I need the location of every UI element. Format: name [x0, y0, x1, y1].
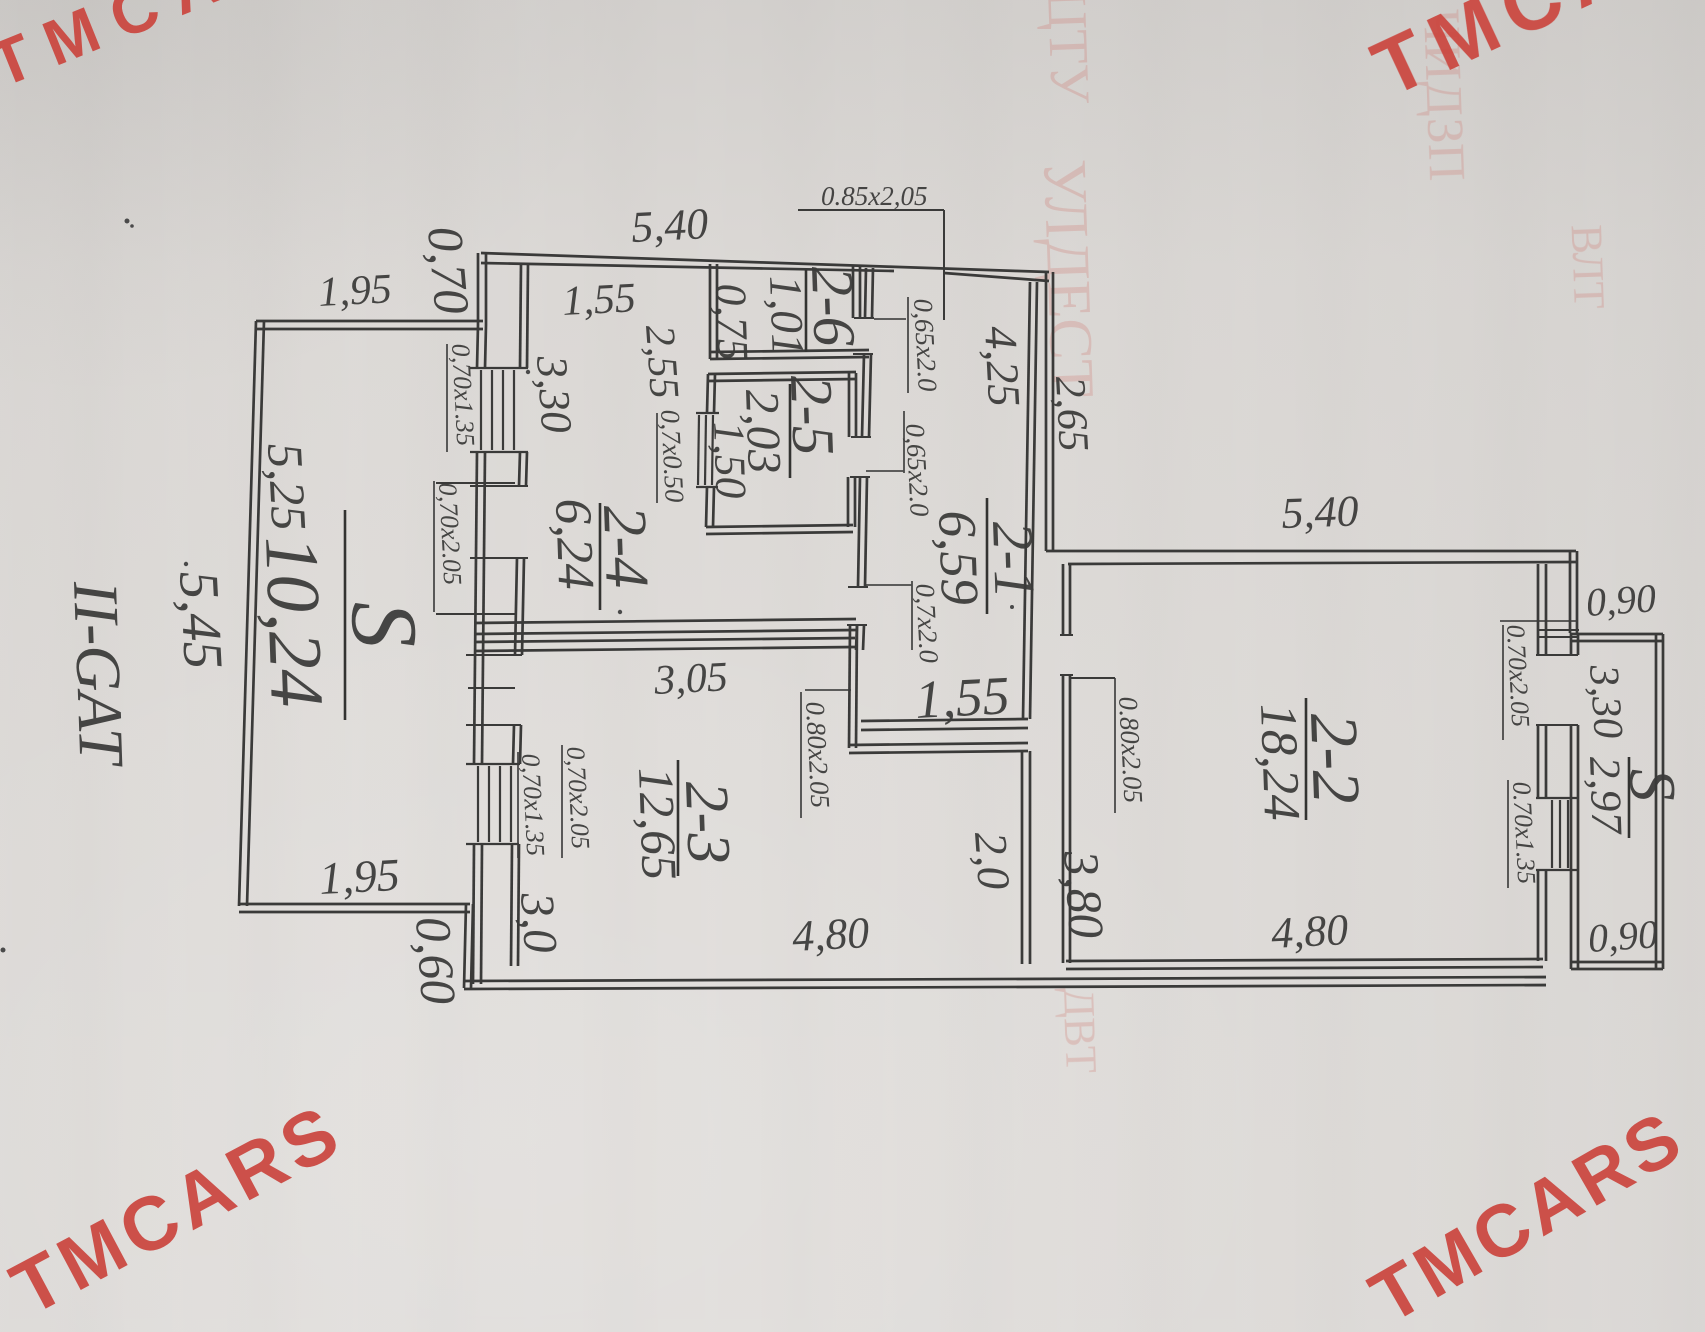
svg-text:1,95: 1,95 [318, 849, 401, 904]
svg-text:S: S [331, 599, 437, 650]
svg-text:3,05: 3,05 [652, 654, 729, 704]
svg-text:4,80: 4,80 [791, 908, 870, 961]
svg-text:3,30: 3,30 [1580, 662, 1631, 740]
svg-text:ЦТУ: ЦТУ [1035, 0, 1101, 105]
svg-text:0,70: 0,70 [417, 224, 480, 316]
svg-text:0,70x1.35: 0,70x1.35 [516, 753, 550, 857]
svg-text:II-GAT: II-GAT [60, 579, 138, 769]
svg-text:5,45: 5,45 [167, 569, 234, 670]
svg-text:12,65: 12,65 [628, 766, 688, 880]
svg-text:0.85x2,05: 0.85x2,05 [821, 181, 927, 211]
svg-text:1,55: 1,55 [913, 665, 1011, 730]
svg-text:3,30: 3,30 [527, 353, 581, 434]
svg-text:1,95: 1,95 [317, 266, 393, 316]
svg-text:УЛДЕСТ: УЛДЕСТ [1030, 158, 1106, 399]
svg-text:0,75: 0,75 [706, 283, 758, 362]
svg-text:0,90: 0,90 [1586, 911, 1659, 961]
svg-text:0.70x1.35: 0.70x1.35 [1507, 781, 1541, 885]
svg-text:6,24: 6,24 [544, 497, 604, 590]
svg-text:4,25: 4,25 [975, 325, 1030, 408]
svg-text:TMCARS: TMCARS [1357, 1094, 1699, 1332]
svg-text:1,01: 1,01 [760, 275, 814, 357]
svg-text:0.80x2.05: 0.80x2.05 [800, 701, 836, 809]
svg-text:0,70x2.05: 0,70x2.05 [561, 746, 595, 850]
svg-text:2,55: 2,55 [636, 323, 687, 400]
svg-text:TMCARS: TMCARS [0, 1087, 357, 1332]
svg-text:10,24: 10,24 [249, 535, 339, 709]
svg-text:3,80: 3,80 [1053, 848, 1115, 940]
svg-text:0.80x2.05: 0.80x2.05 [1113, 696, 1149, 804]
svg-text:2,65: 2,65 [1046, 375, 1097, 453]
svg-text:5,25: 5,25 [257, 442, 318, 532]
svg-text:0,7x0.50: 0,7x0.50 [655, 409, 690, 504]
svg-text:TMCARS: TMCARS [1360, 0, 1705, 113]
svg-text:0,70x1.35: 0,70x1.35 [446, 343, 480, 447]
svg-text:0.70x2.05: 0.70x2.05 [1501, 624, 1535, 728]
svg-text:2,97: 2,97 [1580, 756, 1632, 837]
svg-text:18,24: 18,24 [1249, 702, 1310, 821]
svg-text:2,0: 2,0 [965, 830, 1020, 891]
svg-text:3,0: 3,0 [510, 890, 567, 955]
svg-text:1,55: 1,55 [561, 275, 637, 325]
svg-text:0,90: 0,90 [1584, 575, 1657, 625]
svg-text:ДВТ: ДВТ [1054, 987, 1106, 1074]
svg-text:5,40: 5,40 [630, 199, 709, 252]
svg-text:0,7x2.0: 0,7x2.0 [910, 583, 944, 664]
svg-text:0,65x2.0: 0,65x2.0 [908, 298, 943, 393]
svg-text:0,65x2.0: 0,65x2.0 [900, 423, 935, 518]
svg-text:ВЛТ: ВЛТ [1562, 224, 1614, 310]
svg-text:4,80: 4,80 [1270, 905, 1349, 958]
svg-text:5,40: 5,40 [1281, 486, 1360, 538]
svg-text:0,60: 0,60 [405, 915, 467, 1006]
svg-text:1,50: 1,50 [704, 421, 756, 500]
svg-text:0,70x2.05: 0,70x2.05 [433, 482, 467, 586]
svg-text:TMCARS: TMCARS [0, 0, 361, 101]
